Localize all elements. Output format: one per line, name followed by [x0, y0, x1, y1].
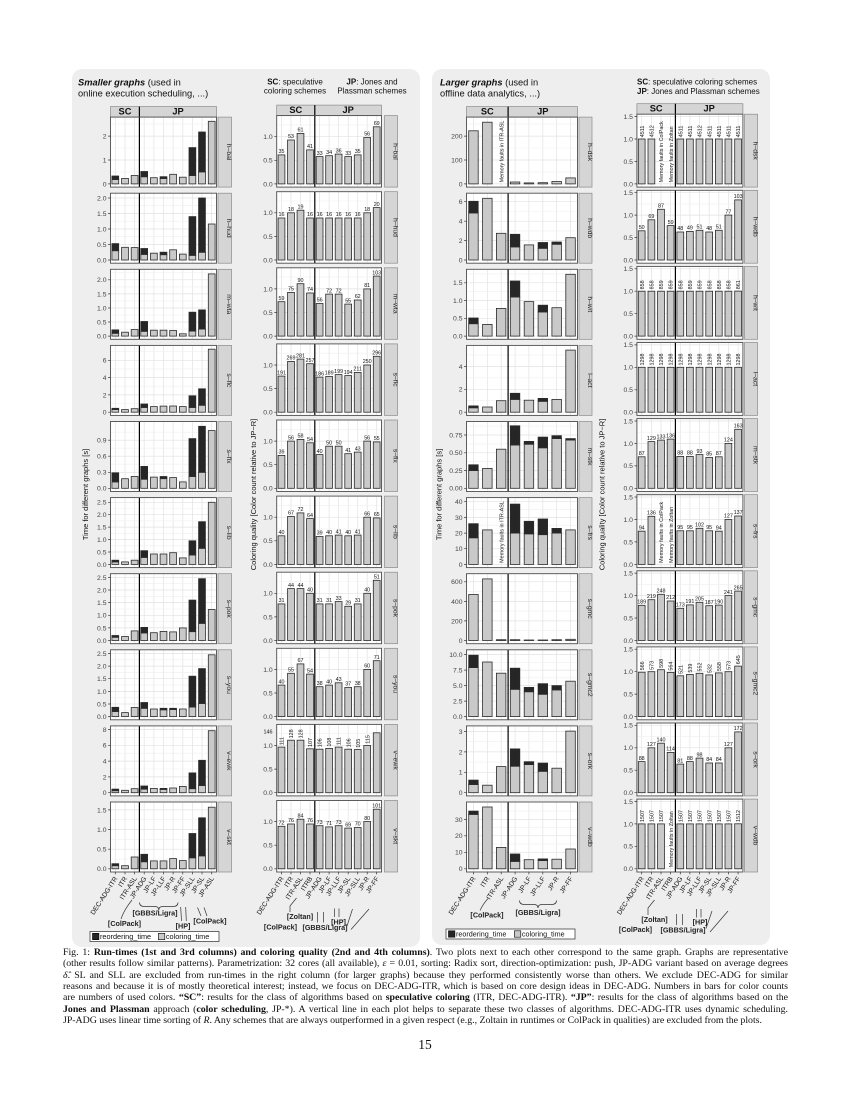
- svg-text:2.0: 2.0: [97, 195, 107, 202]
- svg-text:37: 37: [345, 682, 351, 688]
- svg-text:s–lib: s–lib: [391, 525, 398, 539]
- svg-text:4511: 4511: [688, 126, 694, 138]
- svg-text:1298: 1298: [678, 354, 684, 366]
- svg-text:Smaller graphs (used in: Smaller graphs (used in: [78, 78, 181, 88]
- svg-text:s–frs: s–frs: [586, 525, 593, 540]
- svg-text:1.0: 1.0: [623, 821, 633, 828]
- svg-text:41: 41: [345, 448, 351, 454]
- svg-text:0.5: 0.5: [623, 615, 633, 622]
- svg-text:m–wta: m–wta: [225, 294, 232, 314]
- svg-text:573: 573: [650, 661, 656, 670]
- svg-text:54: 54: [307, 668, 313, 674]
- svg-text:h–bal: h–bal: [391, 143, 398, 160]
- svg-text:58: 58: [298, 434, 304, 440]
- svg-text:SC: SC: [650, 104, 663, 114]
- svg-text:265: 265: [734, 585, 743, 591]
- svg-text:1.5: 1.5: [97, 525, 107, 532]
- svg-text:173: 173: [676, 603, 685, 609]
- svg-text:coloring_time: coloring_time: [166, 932, 209, 941]
- svg-text:1507: 1507: [727, 810, 733, 822]
- svg-text:29: 29: [345, 601, 351, 607]
- svg-text:0: 0: [459, 257, 463, 264]
- svg-text:JP: Jones and Plassman schemes: JP: Jones and Plassman schemes: [637, 87, 760, 96]
- svg-text:16: 16: [326, 212, 332, 218]
- svg-text:56: 56: [364, 132, 370, 138]
- svg-text:1507: 1507: [698, 810, 704, 822]
- svg-text:1.0: 1.0: [97, 827, 107, 834]
- svg-text:67: 67: [298, 658, 304, 664]
- svg-text:66: 66: [364, 511, 370, 517]
- svg-text:16: 16: [279, 212, 285, 218]
- svg-text:2: 2: [459, 387, 463, 394]
- svg-text:88: 88: [687, 756, 693, 762]
- svg-text:248: 248: [657, 589, 666, 595]
- svg-text:v–wdb: v–wdb: [586, 827, 593, 847]
- svg-text:34: 34: [326, 150, 332, 156]
- svg-text:0.0: 0.0: [97, 638, 107, 645]
- svg-text:0.0: 0.0: [263, 410, 273, 417]
- svg-text:m–wta: m–wta: [391, 294, 398, 314]
- svg-text:1298: 1298: [717, 354, 723, 366]
- svg-text:0.5: 0.5: [263, 843, 273, 850]
- svg-text:84: 84: [706, 757, 712, 763]
- svg-text:0: 0: [459, 410, 463, 417]
- svg-text:Plassman schemes: Plassman schemes: [337, 87, 406, 96]
- svg-text:40: 40: [317, 449, 323, 455]
- svg-text:s–ork: s–ork: [586, 753, 593, 770]
- svg-text:194: 194: [344, 370, 353, 376]
- svg-text:539: 539: [688, 664, 694, 673]
- svg-text:858: 858: [678, 280, 684, 289]
- svg-text:0.25: 0.25: [449, 468, 462, 475]
- svg-text:[Zoltan]: [Zoltan]: [287, 912, 313, 921]
- svg-text:l–act: l–act: [751, 372, 758, 386]
- svg-text:0.0: 0.0: [263, 486, 273, 493]
- svg-text:200: 200: [451, 618, 463, 625]
- svg-text:0.5: 0.5: [623, 463, 633, 470]
- svg-text:128: 128: [299, 729, 305, 738]
- svg-text:1298: 1298: [669, 354, 675, 366]
- svg-text:0.3: 0.3: [97, 470, 107, 477]
- svg-text:95: 95: [706, 525, 712, 531]
- svg-text:95: 95: [687, 525, 693, 531]
- svg-text:4: 4: [459, 364, 463, 371]
- svg-text:3: 3: [459, 729, 463, 736]
- svg-text:48: 48: [706, 226, 712, 232]
- svg-text:136: 136: [666, 433, 675, 439]
- svg-text:0.0: 0.0: [263, 714, 273, 721]
- svg-text:257: 257: [306, 358, 315, 364]
- svg-text:4511: 4511: [717, 126, 723, 138]
- svg-text:50: 50: [336, 440, 342, 446]
- svg-text:SC: SC: [481, 107, 494, 117]
- svg-text:18: 18: [288, 207, 294, 213]
- svg-text:69: 69: [345, 822, 351, 828]
- svg-text:0.5: 0.5: [263, 462, 273, 469]
- svg-text:103: 103: [372, 270, 381, 276]
- svg-text:1298: 1298: [640, 354, 646, 366]
- svg-text:Memory faults in ColPack: Memory faults in ColPack: [659, 501, 665, 562]
- svg-text:SC: SC: [119, 107, 132, 117]
- svg-text:1298: 1298: [659, 354, 665, 366]
- svg-text:0.9: 0.9: [97, 438, 107, 445]
- svg-text:858: 858: [717, 280, 723, 289]
- svg-text:98: 98: [697, 752, 703, 758]
- svg-text:1298: 1298: [650, 354, 656, 366]
- svg-text:1.0: 1.0: [623, 213, 633, 220]
- svg-text:0.0: 0.0: [97, 714, 107, 721]
- svg-text:136: 136: [647, 511, 656, 517]
- svg-text:1.5: 1.5: [623, 571, 633, 578]
- svg-text:81: 81: [677, 758, 683, 764]
- svg-text:106: 106: [318, 738, 324, 747]
- svg-text:43: 43: [336, 677, 342, 683]
- svg-text:0.5: 0.5: [453, 316, 463, 323]
- svg-text:JP: JP: [172, 107, 183, 117]
- svg-text:Memory faults in Zoltan: Memory faults in Zoltan: [669, 126, 675, 182]
- svg-text:598: 598: [659, 659, 665, 668]
- svg-text:76: 76: [307, 818, 313, 824]
- svg-text:Memory faults in ITR-ASL: Memory faults in ITR-ASL: [499, 121, 505, 183]
- svg-text:40: 40: [326, 530, 332, 536]
- svg-text:SC: speculative: SC: speculative: [267, 78, 323, 87]
- svg-text:53: 53: [288, 134, 294, 140]
- svg-text:146: 146: [264, 729, 273, 735]
- svg-text:1.5: 1.5: [97, 807, 107, 814]
- svg-text:600: 600: [451, 579, 463, 586]
- svg-text:0.5: 0.5: [97, 847, 107, 854]
- svg-text:0.0: 0.0: [623, 334, 633, 341]
- svg-text:94: 94: [639, 525, 645, 531]
- svg-text:[HP]: [HP]: [176, 922, 191, 931]
- svg-text:s–flx: s–flx: [225, 450, 232, 465]
- svg-text:s–lib: s–lib: [225, 526, 232, 540]
- svg-text:s–ork: s–ork: [751, 751, 758, 768]
- svg-text:93: 93: [697, 449, 703, 455]
- svg-text:4511: 4511: [707, 126, 713, 138]
- svg-text:h–dsk: h–dsk: [751, 142, 758, 161]
- svg-text:m–stk: m–stk: [586, 447, 593, 466]
- svg-text:4511: 4511: [678, 126, 684, 138]
- svg-text:s–you: s–you: [391, 675, 398, 693]
- svg-text:v–wdb: v–wdb: [751, 826, 758, 846]
- svg-text:4: 4: [459, 219, 463, 226]
- svg-text:0.0: 0.0: [623, 486, 633, 493]
- svg-text:40: 40: [455, 499, 463, 506]
- svg-text:102: 102: [695, 523, 704, 529]
- svg-text:10.0: 10.0: [449, 652, 462, 659]
- svg-text:2: 2: [103, 774, 107, 781]
- svg-text:6: 6: [103, 743, 107, 750]
- svg-text:0.5: 0.5: [263, 767, 273, 774]
- svg-text:73: 73: [336, 820, 342, 826]
- svg-text:1.5: 1.5: [623, 342, 633, 349]
- svg-text:7.5: 7.5: [453, 668, 463, 675]
- svg-text:0.0: 0.0: [453, 714, 463, 721]
- svg-text:4511: 4511: [640, 126, 646, 138]
- svg-text:0.0: 0.0: [97, 562, 107, 569]
- svg-text:s–gmc2: s–gmc2: [586, 673, 593, 697]
- svg-text:1.0: 1.0: [97, 226, 107, 233]
- svg-text:4512: 4512: [650, 125, 656, 137]
- svg-text:0.0: 0.0: [623, 181, 633, 188]
- svg-text:31: 31: [355, 598, 361, 604]
- svg-text:h–wdb: h–wdb: [586, 218, 593, 238]
- svg-text:0.0: 0.0: [263, 790, 273, 797]
- svg-text:2.0: 2.0: [97, 664, 107, 671]
- svg-text:81: 81: [364, 283, 370, 289]
- svg-text:0: 0: [459, 638, 463, 645]
- svg-text:1.0: 1.0: [623, 365, 633, 372]
- svg-text:v–ewk: v–ewk: [225, 751, 232, 771]
- svg-text:2.5: 2.5: [97, 500, 107, 507]
- svg-text:1507: 1507: [678, 810, 684, 822]
- svg-text:coloring_time: coloring_time: [522, 930, 565, 939]
- svg-text:71: 71: [326, 821, 332, 827]
- svg-text:111: 111: [337, 737, 343, 745]
- svg-text:74: 74: [307, 287, 313, 293]
- svg-text:69: 69: [374, 121, 380, 127]
- svg-text:0.5: 0.5: [263, 690, 273, 697]
- svg-text:39: 39: [279, 450, 285, 456]
- svg-text:859: 859: [688, 280, 694, 289]
- svg-text:1507: 1507: [717, 810, 723, 822]
- svg-text:18: 18: [364, 207, 370, 213]
- svg-text:0.0: 0.0: [263, 334, 273, 341]
- svg-text:88: 88: [687, 451, 693, 457]
- svg-text:101: 101: [372, 803, 381, 809]
- svg-text:51: 51: [697, 225, 703, 231]
- svg-text:205: 205: [695, 597, 704, 603]
- svg-text:1.0: 1.0: [97, 613, 107, 620]
- svg-text:0.5: 0.5: [263, 310, 273, 317]
- svg-text:reordering_time: reordering_time: [456, 930, 506, 939]
- svg-text:111: 111: [280, 737, 286, 745]
- svg-text:186: 186: [315, 371, 324, 377]
- svg-text:0.5: 0.5: [263, 614, 273, 621]
- svg-text:0.0: 0.0: [623, 790, 633, 797]
- svg-text:69: 69: [648, 214, 654, 220]
- svg-text:1.5: 1.5: [623, 494, 633, 501]
- svg-text:1298: 1298: [707, 354, 713, 366]
- svg-text:564: 564: [669, 662, 675, 671]
- svg-text:offline data analytics, ...): offline data analytics, ...): [440, 89, 540, 99]
- svg-text:87: 87: [716, 451, 722, 457]
- svg-text:35: 35: [355, 149, 361, 155]
- svg-text:33: 33: [317, 151, 323, 157]
- svg-text:0.0: 0.0: [263, 866, 273, 873]
- svg-text:5.0: 5.0: [453, 683, 463, 690]
- svg-text:coloring schemes: coloring schemes: [264, 87, 326, 96]
- svg-text:1.5: 1.5: [623, 114, 633, 121]
- svg-text:8: 8: [103, 727, 107, 734]
- svg-text:2.5: 2.5: [97, 651, 107, 658]
- svg-text:0.5: 0.5: [623, 768, 633, 775]
- svg-text:[ColPack]: [ColPack]: [108, 919, 141, 928]
- svg-text:1.5: 1.5: [623, 799, 633, 806]
- svg-text:JP: JP: [704, 104, 715, 114]
- svg-text:[HP]: [HP]: [693, 918, 708, 927]
- svg-text:0.50: 0.50: [449, 450, 462, 457]
- svg-text:0: 0: [459, 181, 463, 188]
- svg-text:1.5: 1.5: [623, 723, 633, 730]
- svg-text:40: 40: [364, 588, 370, 594]
- svg-text:127: 127: [647, 742, 656, 748]
- svg-text:0.0: 0.0: [453, 334, 463, 341]
- svg-text:0.0: 0.0: [623, 866, 633, 873]
- svg-text:6: 6: [103, 358, 107, 365]
- svg-text:1.0: 1.0: [263, 210, 273, 217]
- svg-text:54: 54: [307, 437, 313, 443]
- svg-text:172: 172: [734, 726, 743, 732]
- svg-text:s–gmc: s–gmc: [751, 597, 758, 618]
- svg-text:2.0: 2.0: [97, 587, 107, 594]
- svg-text:0.0: 0.0: [97, 334, 107, 341]
- svg-text:16: 16: [336, 212, 342, 218]
- svg-text:1512: 1512: [736, 810, 742, 822]
- svg-text:2.5: 2.5: [97, 575, 107, 582]
- svg-text:1507: 1507: [707, 810, 713, 822]
- svg-text:h–bal: h–bal: [225, 144, 232, 161]
- svg-text:h–hud: h–hud: [391, 218, 398, 237]
- svg-text:211: 211: [353, 367, 362, 373]
- svg-text:Memory faults in Zoltan: Memory faults in Zoltan: [669, 507, 675, 563]
- svg-text:1.0: 1.0: [453, 298, 463, 305]
- svg-text:1.0: 1.0: [263, 515, 273, 522]
- svg-text:137: 137: [734, 510, 743, 516]
- svg-text:127: 127: [724, 514, 733, 520]
- svg-text:h–hud: h–hud: [225, 219, 232, 238]
- svg-text:552: 552: [698, 663, 704, 672]
- svg-text:56: 56: [364, 435, 370, 441]
- svg-text:103: 103: [734, 194, 743, 200]
- svg-text:1507: 1507: [640, 810, 646, 822]
- svg-text:[HP]: [HP]: [331, 918, 346, 927]
- svg-text:87: 87: [658, 204, 664, 210]
- svg-text:0.5: 0.5: [623, 387, 633, 394]
- svg-text:1.5: 1.5: [97, 291, 107, 298]
- svg-text:44: 44: [288, 583, 294, 589]
- svg-text:1298: 1298: [698, 354, 704, 366]
- svg-text:1.5: 1.5: [97, 211, 107, 218]
- svg-text:0.5: 0.5: [263, 234, 273, 241]
- svg-text:Time for different graphs [s]: Time for different graphs [s]: [435, 449, 444, 540]
- svg-text:858: 858: [650, 280, 656, 289]
- svg-text:0.0: 0.0: [623, 257, 633, 264]
- svg-text:Larger graphs (used in: Larger graphs (used in: [440, 78, 538, 88]
- svg-text:0.0: 0.0: [623, 562, 633, 569]
- svg-text:l–act: l–act: [586, 373, 593, 387]
- svg-text:0: 0: [103, 181, 107, 188]
- svg-text:65: 65: [374, 512, 380, 518]
- svg-text:s–flc: s–flc: [225, 373, 232, 388]
- svg-text:0.0: 0.0: [623, 410, 633, 417]
- svg-text:36: 36: [336, 148, 342, 154]
- svg-text:0.5: 0.5: [263, 386, 273, 393]
- svg-text:Coloring quality [Color count: Coloring quality [Color count relative t…: [598, 419, 607, 571]
- svg-text:0.5: 0.5: [623, 159, 633, 166]
- svg-text:0: 0: [459, 562, 463, 569]
- svg-text:s–gmc2: s–gmc2: [751, 671, 758, 695]
- svg-text:JP: JP: [343, 105, 354, 115]
- svg-text:858: 858: [727, 280, 733, 289]
- svg-text:88: 88: [677, 451, 683, 457]
- svg-text:20: 20: [374, 202, 380, 208]
- svg-text:87: 87: [639, 451, 645, 457]
- svg-text:0.0: 0.0: [623, 638, 633, 645]
- svg-text:39: 39: [317, 531, 323, 537]
- svg-text:30: 30: [455, 515, 463, 522]
- svg-text:1.5: 1.5: [623, 418, 633, 425]
- svg-text:1.5: 1.5: [97, 600, 107, 607]
- svg-text:50: 50: [639, 225, 645, 231]
- svg-text:59: 59: [279, 296, 285, 302]
- svg-text:133: 133: [657, 434, 666, 440]
- svg-text:41: 41: [355, 529, 361, 535]
- svg-text:1.0: 1.0: [263, 134, 273, 141]
- svg-text:191: 191: [277, 370, 286, 376]
- svg-text:1.0: 1.0: [263, 667, 273, 674]
- svg-text:1298: 1298: [727, 354, 733, 366]
- svg-text:0.0: 0.0: [97, 486, 107, 493]
- svg-text:861: 861: [736, 280, 742, 289]
- svg-text:1.0: 1.0: [97, 305, 107, 312]
- svg-text:1.0: 1.0: [97, 537, 107, 544]
- svg-text:212: 212: [666, 595, 675, 601]
- svg-text:200: 200: [451, 134, 463, 141]
- svg-text:189: 189: [637, 600, 646, 606]
- svg-text:108: 108: [327, 738, 333, 747]
- svg-text:Memory faults in ITR-ASL: Memory faults in ITR-ASL: [499, 501, 505, 563]
- svg-text:0.5: 0.5: [623, 692, 633, 699]
- svg-text:20: 20: [455, 531, 463, 538]
- svg-text:107: 107: [308, 738, 314, 747]
- svg-text:[ColPack]: [ColPack]: [619, 925, 652, 934]
- svg-text:1.0: 1.0: [263, 743, 273, 750]
- svg-text:[GBBS/Ligra]: [GBBS/Ligra]: [515, 908, 560, 917]
- svg-text:105: 105: [356, 739, 362, 748]
- svg-text:85: 85: [706, 452, 712, 458]
- svg-text:1.0: 1.0: [623, 745, 633, 752]
- svg-text:1.5: 1.5: [97, 676, 107, 683]
- svg-text:573: 573: [727, 661, 733, 670]
- svg-text:4512: 4512: [698, 125, 704, 137]
- svg-text:1.0: 1.0: [623, 517, 633, 524]
- svg-text:129: 129: [647, 436, 656, 442]
- svg-text:72: 72: [298, 507, 304, 513]
- svg-text:190: 190: [714, 599, 723, 605]
- svg-text:72: 72: [336, 288, 342, 294]
- svg-text:1.0: 1.0: [623, 136, 633, 143]
- svg-text:0.5: 0.5: [97, 701, 107, 708]
- svg-text:31: 31: [326, 598, 332, 604]
- svg-text:[ColPack]: [ColPack]: [193, 917, 226, 926]
- svg-text:[ColPack]: [ColPack]: [470, 911, 503, 920]
- svg-text:2: 2: [103, 134, 107, 141]
- svg-text:0.75: 0.75: [449, 432, 462, 439]
- svg-text:70: 70: [355, 822, 361, 828]
- svg-text:h–wit: h–wit: [586, 296, 593, 312]
- svg-text:55: 55: [288, 668, 294, 674]
- svg-text:0.5: 0.5: [97, 625, 107, 632]
- svg-text:s–gmc: s–gmc: [586, 599, 593, 620]
- svg-text:84: 84: [716, 757, 722, 763]
- svg-text:73: 73: [317, 820, 323, 826]
- svg-text:128: 128: [289, 729, 295, 738]
- svg-text:127: 127: [724, 742, 733, 748]
- svg-text:16: 16: [345, 212, 351, 218]
- svg-text:0.5: 0.5: [623, 844, 633, 851]
